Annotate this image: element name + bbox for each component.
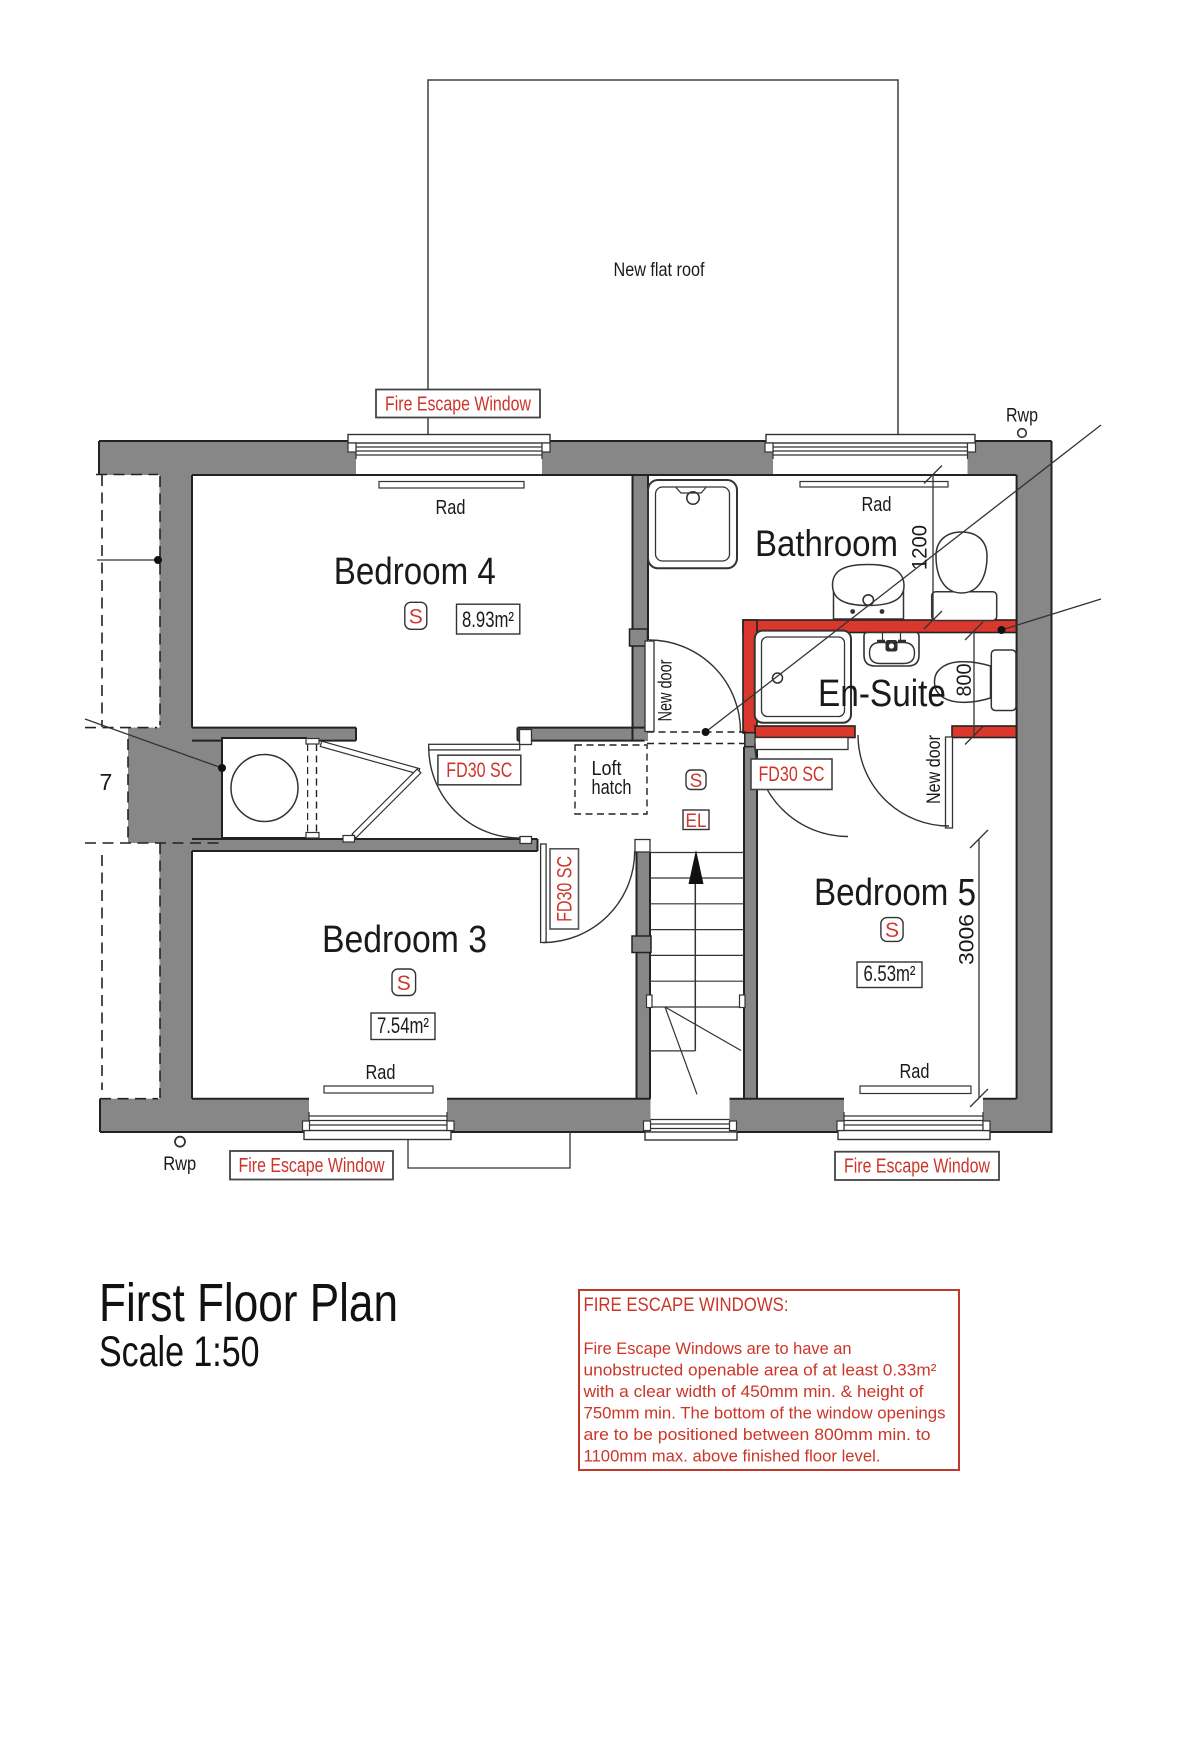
svg-text:Rad: Rad	[862, 494, 892, 516]
svg-text:FD30 SC: FD30 SC	[446, 759, 512, 782]
svg-text:unobstructed openable area of: unobstructed openable area of at least 0…	[584, 1361, 937, 1380]
svg-text:S: S	[409, 606, 423, 629]
svg-text:Bedroom 3: Bedroom 3	[322, 919, 487, 961]
svg-text:Bedroom 4: Bedroom 4	[334, 551, 496, 593]
svg-text:Fire Escape Window: Fire Escape Window	[385, 394, 531, 416]
svg-text:6.53m²: 6.53m²	[864, 961, 916, 986]
svg-text:1200: 1200	[909, 525, 932, 570]
svg-text:FD30 SC: FD30 SC	[554, 856, 577, 922]
svg-text:1100mm max. above finished flo: 1100mm max. above finished floor level.	[584, 1447, 881, 1466]
svg-text:Bedroom 5: Bedroom 5	[814, 872, 976, 914]
svg-text:Bathroom: Bathroom	[755, 523, 898, 564]
svg-text:Fire Escape Windows are to hav: Fire Escape Windows are to have an	[584, 1339, 852, 1358]
svg-text:Rad: Rad	[436, 497, 466, 519]
svg-text:EL: EL	[686, 811, 707, 832]
svg-text:FIRE ESCAPE WINDOWS:: FIRE ESCAPE WINDOWS:	[584, 1294, 789, 1316]
svg-text:FD30 SC: FD30 SC	[759, 763, 825, 786]
svg-text:New door: New door	[924, 734, 945, 804]
svg-text:are to be positioned between 8: are to be positioned between 800mm min. …	[584, 1425, 931, 1444]
svg-text:7: 7	[100, 769, 113, 795]
svg-text:New door: New door	[656, 659, 677, 722]
svg-text:Fire Escape Window: Fire Escape Window	[844, 1156, 990, 1178]
svg-text:Rwp: Rwp	[1006, 406, 1038, 427]
svg-text:Rad: Rad	[900, 1061, 930, 1083]
svg-text:3006: 3006	[956, 914, 979, 965]
svg-text:800: 800	[953, 664, 976, 697]
svg-text:Fire Escape Window: Fire Escape Window	[239, 1155, 385, 1177]
svg-text:S: S	[885, 919, 899, 942]
svg-text:New flat roof: New flat roof	[614, 259, 705, 281]
svg-text:7.54m²: 7.54m²	[377, 1013, 429, 1038]
svg-text:Scale 1:50: Scale 1:50	[99, 1328, 260, 1376]
svg-text:Rwp: Rwp	[163, 1154, 196, 1175]
svg-text:Rad: Rad	[366, 1062, 396, 1084]
svg-text:8.93m²: 8.93m²	[462, 607, 514, 632]
svg-text:En-Suite: En-Suite	[818, 673, 946, 715]
svg-text:S: S	[397, 972, 411, 995]
svg-text:hatch: hatch	[592, 777, 632, 799]
svg-text:S: S	[690, 771, 703, 792]
svg-text:First Floor Plan: First Floor Plan	[99, 1273, 398, 1333]
svg-text:with a clear width of 450mm mi: with a clear width of 450mm min. & heigh…	[582, 1382, 923, 1401]
svg-text:750mm min. The bottom of the: 750mm min. The bottom of the window open…	[584, 1404, 946, 1423]
